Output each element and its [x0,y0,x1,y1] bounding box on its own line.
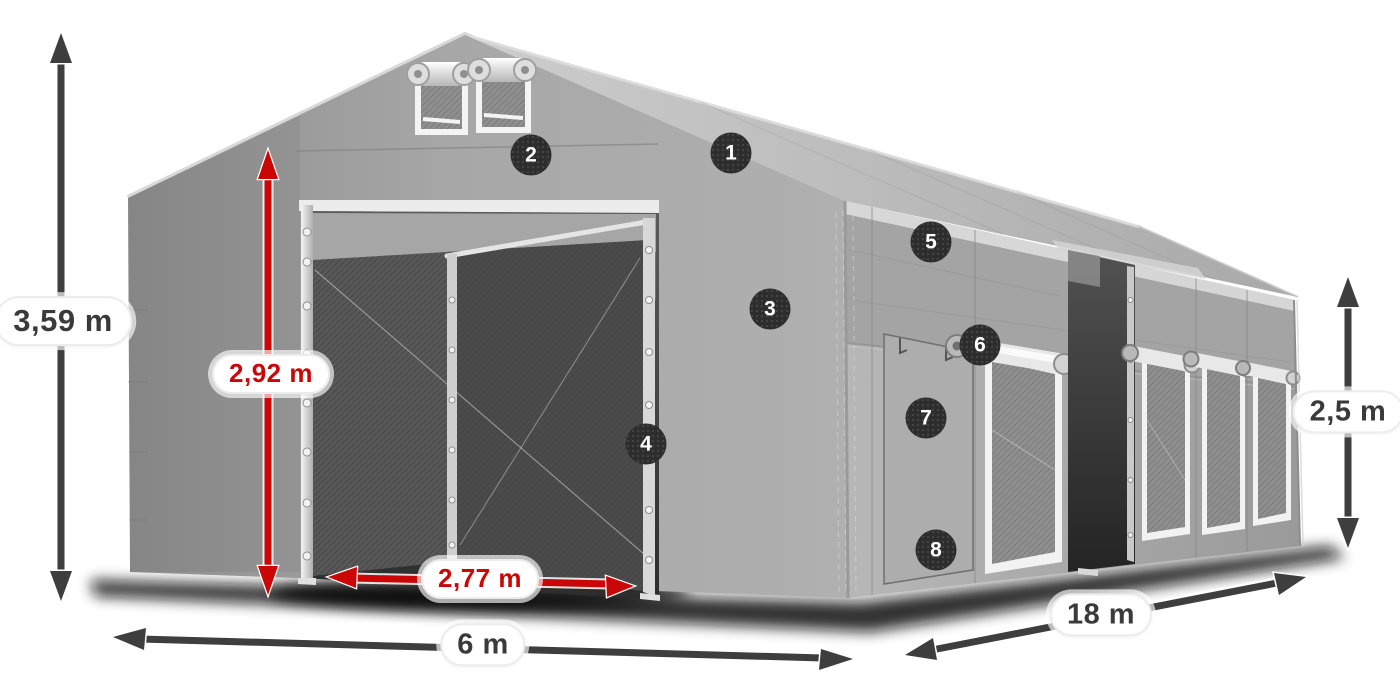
dimension-label-side-height: 2,5 m [1293,390,1400,433]
side-wall [845,201,1303,598]
dimension-label-total-height: 3,59 m [0,296,132,346]
tent-dimension-diagram: 3,59 m 2,92 m 2,77 m 6 m 18 m 2,5 m 1 2 … [0,0,1400,700]
callout-badge-2: 2 [511,135,552,176]
callout-badge-3: 3 [750,289,791,330]
callout-badge-1: 1 [711,133,752,174]
callout-badge-6: 6 [960,325,1001,366]
gable-vent-left [407,62,475,132]
dimension-label-door-height: 2,92 m [212,354,330,394]
tent-illustration [0,0,1400,700]
callout-badge-8: 8 [916,530,957,571]
dimension-label-width: 6 m [440,623,525,666]
rolled-door-panel [1068,250,1100,287]
dimension-label-length: 18 m [1050,593,1152,636]
interior-mesh-left [312,252,447,576]
callout-badge-7: 7 [906,398,947,439]
front-door-opening [298,205,660,601]
callout-badge-5: 5 [911,222,952,263]
dimension-label-door-width: 2,77 m [421,559,539,599]
door-header-rail [299,200,659,213]
gable-vent-right [468,58,536,130]
callout-badge-4: 4 [626,424,667,465]
side-sliding-door-opening [1068,250,1135,576]
